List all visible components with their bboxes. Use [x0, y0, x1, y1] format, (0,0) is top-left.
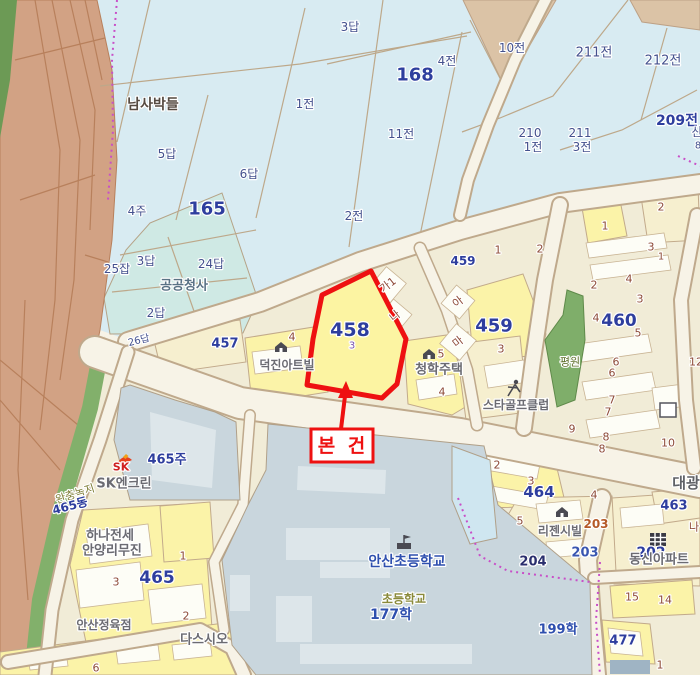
map-label: 4: [591, 489, 598, 502]
map-label: 4: [626, 273, 633, 286]
map-label: 산: [691, 125, 700, 139]
map-label: 4: [593, 312, 600, 325]
map-label: 리젠시빌: [538, 523, 582, 538]
map-label: 3전: [573, 140, 592, 154]
map-label: 2전: [345, 209, 364, 223]
map-label: 6: [93, 662, 100, 675]
map-label: 청학주택: [415, 362, 463, 378]
map-label: 203: [571, 546, 598, 561]
map-label: 2: [658, 201, 665, 214]
map-label: 203: [583, 517, 608, 531]
map-label: 477: [609, 634, 636, 649]
map-label: 5: [438, 348, 445, 361]
map-label: 남사박들: [127, 96, 179, 113]
map-label: 168: [396, 65, 434, 86]
map-label: 1전: [524, 140, 543, 154]
map-label: 안산초등학교: [368, 553, 445, 570]
map-label: SK: [113, 461, 130, 474]
small-blue-building: [610, 660, 650, 674]
map-label: 동신아파트: [629, 552, 689, 568]
map-label: 11전: [388, 127, 414, 141]
map-label: 안양리무진: [82, 543, 142, 559]
map-label: 나: [689, 521, 699, 534]
map-label: 460: [601, 311, 637, 331]
map-label: 2: [537, 243, 544, 256]
map-label: 6답: [240, 167, 259, 181]
map-label: 다스시오: [180, 632, 228, 648]
map-label: 3: [637, 293, 644, 306]
map-label: 3: [528, 475, 535, 488]
map-label: 평원: [560, 356, 580, 369]
map-label: 3: [498, 343, 505, 356]
cadastral-map: 458 3 남사박들5답6답1전3답4전16811전2전10전211전212전2…: [0, 0, 700, 675]
subject-parcel-subnumber: 3: [349, 341, 355, 352]
map-label: 457: [211, 337, 238, 352]
map-label: 5: [635, 327, 642, 340]
map-label: 465주: [147, 453, 186, 468]
map-label: 3답: [137, 254, 156, 268]
map-label: 2: [591, 279, 598, 292]
map-label: 2: [494, 459, 501, 472]
map-label: 7: [605, 406, 612, 419]
map-label: 9: [569, 423, 576, 436]
map-label: 4전: [438, 54, 457, 68]
map-label: 1: [495, 244, 502, 257]
map-label: 2: [183, 610, 190, 623]
map-label: 24답: [198, 257, 224, 271]
map-label: 25잡: [104, 262, 130, 276]
map-label: 204: [519, 555, 546, 570]
map-label: 5: [517, 515, 524, 528]
map-label: 210: [519, 126, 542, 140]
map-label: 덕진아트빌: [259, 357, 314, 372]
map-label: 5답: [158, 147, 177, 161]
map-label: 465: [139, 568, 175, 588]
map-label: 2답: [147, 306, 166, 320]
map-label: 10전: [499, 41, 525, 55]
map-label: 3답: [341, 20, 360, 34]
map-label: 초등학교: [382, 591, 426, 606]
map-label: 공공청사: [160, 278, 208, 294]
map-label: 3: [113, 576, 120, 589]
map-label: 4: [439, 386, 446, 399]
map-label: 15: [625, 591, 639, 604]
map-label: 459: [475, 316, 513, 337]
map-label: 4: [289, 331, 296, 344]
map-label: 165: [188, 199, 226, 220]
building-outline-icon: [660, 403, 676, 417]
map-label: 대광: [672, 474, 700, 492]
map-label: 14: [658, 594, 672, 607]
map-label: 1: [658, 252, 664, 263]
map-label: SK엔크린: [96, 476, 151, 492]
annotation-label: 본 건: [318, 435, 369, 457]
map-label: 211전: [576, 46, 613, 61]
map-label: 459: [450, 254, 475, 268]
map-label: 스타골프클럽: [483, 397, 549, 412]
map-label: 177학: [370, 607, 412, 623]
map-label: 463: [660, 499, 687, 514]
map-label: 212전: [645, 54, 682, 69]
map-label: 211: [569, 126, 592, 140]
map-label: 10: [661, 437, 675, 450]
map-label: 1: [602, 220, 609, 233]
map-label: 6: [609, 367, 616, 380]
map-label: 8: [695, 141, 700, 152]
subject-parcel-number: 458: [330, 319, 370, 341]
map-label: 1: [657, 659, 664, 672]
map-label: 199학: [538, 622, 577, 638]
map-label: 안산정육점: [76, 617, 131, 632]
map-label: 12: [689, 356, 700, 369]
map-label: 하나전세: [86, 528, 134, 544]
map-label: 3: [648, 241, 655, 254]
map-label: 8: [599, 443, 606, 456]
map-label: 4주: [128, 204, 147, 218]
map-label: 1: [180, 550, 187, 563]
map-label: 1전: [296, 97, 315, 111]
